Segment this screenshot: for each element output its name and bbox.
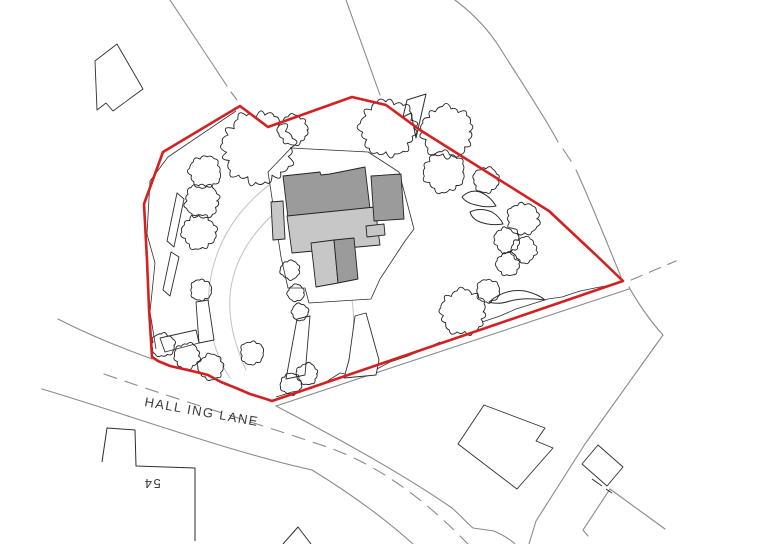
house-extension-east xyxy=(334,238,358,283)
parcel-line-dash xyxy=(231,92,237,100)
fence-line xyxy=(346,0,380,95)
building-northwest xyxy=(95,44,143,111)
tree-canopy xyxy=(477,279,500,303)
labels: HALL ING LANE 54 xyxy=(143,394,260,491)
lane-edge-upper xyxy=(563,149,571,161)
tree-canopy xyxy=(181,215,218,250)
plot-line-southeast xyxy=(610,489,665,529)
house-wing-east xyxy=(371,174,404,221)
road-name-label: HALL ING LANE xyxy=(143,394,260,429)
verge-line xyxy=(276,289,629,406)
main-building xyxy=(268,148,414,303)
footpath-funnel xyxy=(286,316,310,379)
tree-canopy xyxy=(420,103,473,159)
boundary-dash-east xyxy=(631,261,676,280)
junction-corner xyxy=(629,287,663,335)
parcel-line xyxy=(170,0,227,86)
shrub-leaf xyxy=(470,210,503,225)
site-plan-page: HALL ING LANE 54 xyxy=(0,0,768,544)
lane-edge-upper xyxy=(576,170,621,277)
tree-canopy xyxy=(241,341,264,365)
shrub-leaf xyxy=(462,191,496,207)
tree-canopy xyxy=(187,156,220,189)
house-extension-west xyxy=(311,240,338,287)
tree-canopy xyxy=(494,227,520,254)
tree-canopy xyxy=(439,287,486,335)
road-north-edge xyxy=(58,319,152,359)
house-number-label: 54 xyxy=(143,476,160,491)
house-block-west xyxy=(271,201,285,240)
site-plan-canvas: HALL ING LANE 54 xyxy=(0,0,768,544)
plot-line-southeast xyxy=(583,489,610,536)
hedge-sliver xyxy=(167,193,184,247)
hedge-sliver xyxy=(163,252,179,296)
tree-canopy xyxy=(495,251,520,275)
building-southeast xyxy=(582,445,623,486)
tree-canopy xyxy=(184,184,220,218)
tree-canopy xyxy=(357,99,418,158)
footpath-funnel xyxy=(344,313,379,378)
house-link-east xyxy=(366,224,385,237)
tree-canopy xyxy=(507,202,540,235)
building-roof-peak xyxy=(283,527,311,544)
drive-strip xyxy=(196,300,214,343)
building-south xyxy=(458,405,553,489)
inner-fence-line xyxy=(147,111,236,349)
